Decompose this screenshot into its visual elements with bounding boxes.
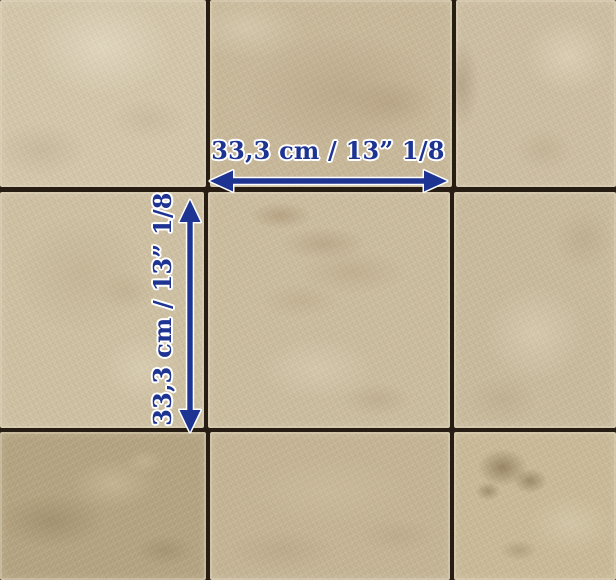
tile-row3-col2: [210, 432, 450, 580]
tile-row2-col3: [454, 192, 616, 428]
tile-row1-col1: [0, 0, 206, 187]
tile-row2-col2-measured: [208, 192, 450, 428]
tile-row3-col1: [0, 432, 206, 580]
stone-tile-photo: 33,3 cm / 13” 1/8 33,3 cm / 13” 1/8: [0, 0, 616, 580]
horizontal-dimension-label: 33,3 cm / 13” 1/8: [198, 135, 458, 167]
tile-row1-col3: [456, 0, 616, 187]
tile-row3-col3: [454, 432, 616, 580]
vertical-dimension-label: 33,3 cm / 13” 1/8: [146, 179, 180, 439]
